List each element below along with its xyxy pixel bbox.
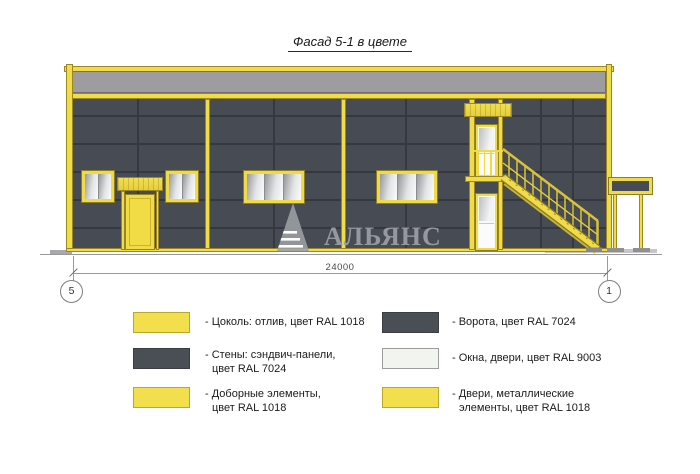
- balcony-baluster: [484, 151, 486, 177]
- exit-canopy-sign: [609, 178, 652, 194]
- watermark-logo-icon: [277, 203, 309, 251]
- drawing-title-text: Фасад 5-1 в цвете: [288, 34, 412, 52]
- legend-label: - Двери, металлические элементы, цвет RA…: [452, 388, 590, 415]
- window: [82, 171, 114, 202]
- legend-swatch: [133, 312, 190, 333]
- window-pane: [247, 174, 265, 200]
- door-leaf: [479, 223, 494, 247]
- door-panel-line: [129, 198, 151, 246]
- window-pane: [169, 174, 183, 199]
- extension-line: [607, 256, 608, 281]
- window: [377, 171, 437, 203]
- axis-number: 5: [69, 285, 75, 297]
- window-pane: [380, 174, 398, 200]
- parapet-band: [72, 71, 606, 93]
- stair-tower-cornice: [464, 103, 512, 117]
- door-jamb: [156, 191, 160, 250]
- canopy-post: [639, 194, 643, 249]
- door-glass: [479, 197, 494, 222]
- axis-bubble-1: 1: [598, 280, 621, 303]
- legend-swatch: [382, 348, 439, 369]
- legend-label: - Стены: сэндвич-панели, цвет RAL 7024: [205, 349, 335, 376]
- post-base-pad: [633, 248, 650, 252]
- window-pane: [284, 174, 301, 200]
- stair-base-pad: [586, 248, 602, 253]
- lower-exit-door: [476, 194, 497, 251]
- watermark-text: АЛЬЯНС: [324, 222, 442, 252]
- window-pane: [183, 174, 196, 199]
- axis-bubble-5: 5: [60, 280, 83, 303]
- external-staircase: [495, 140, 620, 258]
- canopy-post: [613, 194, 617, 249]
- axis-number: 1: [606, 285, 612, 297]
- balcony-baluster: [477, 151, 479, 177]
- legend-label: - Ворота, цвет RAL 7024: [452, 316, 576, 330]
- balcony-baluster: [490, 151, 492, 177]
- legend-swatch: [133, 387, 190, 408]
- corner-column-left: [66, 64, 73, 253]
- door-glass: [479, 128, 494, 151]
- legend-label: - Окна, двери, цвет RAL 9003: [452, 352, 601, 366]
- door-canopy: [117, 177, 163, 191]
- window-pane: [85, 174, 99, 199]
- intermediate-column: [205, 99, 210, 249]
- dimension-line: [73, 273, 607, 274]
- legend-swatch: [382, 387, 439, 408]
- panel-seam: [73, 115, 606, 117]
- legend-label: - Доборные элементы, цвет RAL 1018: [205, 388, 321, 415]
- post-base-pad: [607, 248, 624, 252]
- entrance-door: [125, 194, 155, 250]
- dimension-label: 24000: [290, 262, 390, 273]
- window-pane: [417, 174, 434, 200]
- stair-midrail: [503, 163, 598, 235]
- stair-tower-column: [469, 99, 475, 250]
- window: [166, 171, 198, 202]
- door-jamb: [121, 191, 125, 250]
- legend-label: - Цоколь: отлив, цвет RAL 1018: [205, 316, 365, 330]
- window-pane: [99, 174, 112, 199]
- extension-line: [73, 256, 74, 281]
- window: [244, 171, 304, 203]
- legend-swatch: [382, 312, 439, 333]
- drawing-sheet: Фасад 5-1 в цвете: [0, 0, 700, 474]
- legend-swatch: [133, 348, 190, 369]
- window-pane: [265, 174, 283, 200]
- window-pane: [398, 174, 416, 200]
- stair-stringer: [503, 177, 598, 249]
- drawing-title: Фасад 5-1 в цвете: [0, 33, 700, 52]
